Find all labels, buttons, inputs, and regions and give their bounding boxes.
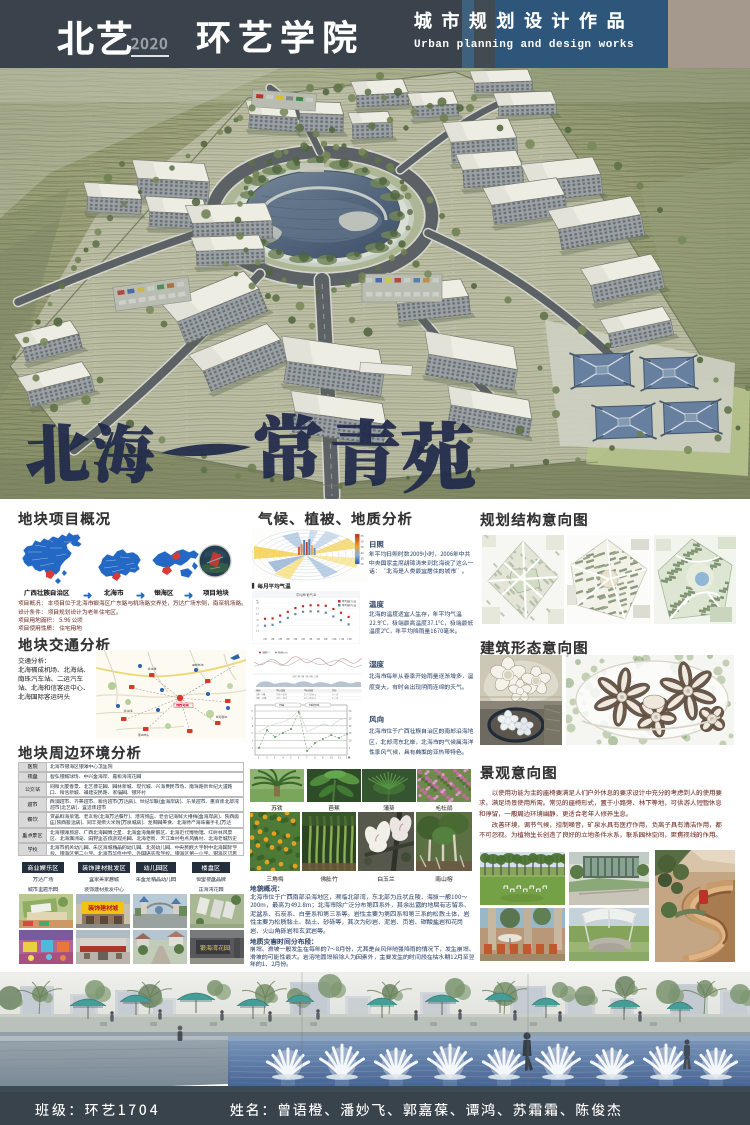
- svg-text:1: 1: [252, 746, 254, 750]
- svg-text:25: 25: [349, 716, 352, 720]
- svg-text:苑: 苑: [399, 399, 477, 499]
- svg-text:6～14: 6～14: [332, 696, 338, 700]
- svg-text:月: 月: [347, 756, 351, 760]
- svg-text:装饰建材城: 装饰建材城: [87, 903, 118, 912]
- svg-text:20～260mm: 20～260mm: [304, 696, 316, 700]
- svg-text:北海站: 北海站: [123, 709, 133, 713]
- svg-text:风向频率: 风向频率: [308, 703, 320, 707]
- svg-text:7月: 7月: [309, 637, 313, 641]
- svg-text:2: 2: [252, 739, 254, 743]
- svg-text:5: 5: [290, 756, 292, 760]
- svg-text:客运码头: 客运码头: [137, 733, 149, 737]
- svg-text:10: 10: [330, 756, 333, 760]
- svg-text:2: 2: [266, 756, 268, 760]
- svg-text:4: 4: [251, 724, 253, 728]
- svg-text:银海湾花园: 银海湾花园: [200, 943, 230, 952]
- svg-text:15: 15: [349, 731, 352, 735]
- svg-text:15: 15: [255, 629, 259, 633]
- svg-text:平均高/低气温: 平均高/低气温: [295, 592, 317, 597]
- svg-text:湿度%: 湿度%: [262, 651, 270, 655]
- svg-text:20: 20: [349, 724, 352, 728]
- svg-text:4月: 4月: [285, 637, 290, 641]
- svg-text:风速: 风速: [278, 703, 285, 707]
- svg-text:10: 10: [360, 562, 364, 566]
- svg-text:10: 10: [349, 739, 352, 743]
- svg-text:福成机场: 福成机场: [192, 663, 203, 667]
- svg-text:9: 9: [322, 756, 324, 760]
- svg-text:6: 6: [252, 709, 254, 713]
- svg-text:8月: 8月: [316, 637, 320, 641]
- svg-text:10月: 10月: [331, 637, 336, 641]
- svg-text:海: 海: [92, 405, 156, 495]
- svg-text:11: 11: [338, 756, 341, 760]
- svg-text:5月: 5月: [293, 637, 297, 641]
- svg-text:7月—12月: 7月—12月: [256, 696, 266, 700]
- svg-text:1月: 1月: [263, 637, 267, 641]
- svg-text:1月 3月 5月 7月 9月 11月: 1月 3月 5月 7月 9月 11月: [292, 675, 318, 679]
- svg-text:3月: 3月: [278, 637, 282, 641]
- svg-text:40: 40: [255, 601, 259, 605]
- svg-text:降雨mm: 降雨mm: [278, 651, 289, 655]
- svg-text:3: 3: [274, 756, 276, 760]
- svg-text:青: 青: [330, 398, 402, 499]
- svg-text:5: 5: [252, 716, 254, 720]
- svg-text:2月: 2月: [271, 637, 275, 641]
- svg-text:和信客运: 和信客运: [215, 715, 227, 719]
- svg-text:5: 5: [349, 746, 351, 750]
- svg-text:北: 北: [23, 403, 90, 497]
- svg-text:70%～82%: 70%～82%: [276, 696, 287, 700]
- svg-text:项目地块: 项目地块: [175, 703, 190, 708]
- svg-text:北海港: 北海港: [147, 667, 157, 671]
- svg-text:9月: 9月: [324, 637, 328, 641]
- svg-text:8: 8: [314, 756, 316, 760]
- svg-text:平均低气温: 平均低气温: [341, 604, 356, 608]
- svg-text:1: 1: [258, 756, 260, 760]
- svg-text:15: 15: [360, 556, 364, 560]
- svg-text:6月: 6月: [301, 637, 305, 641]
- svg-text:常: 常: [253, 393, 325, 495]
- svg-text:6: 6: [298, 756, 300, 760]
- svg-text:3: 3: [252, 731, 254, 735]
- svg-text:11月: 11月: [339, 637, 344, 641]
- svg-text:7: 7: [306, 756, 308, 760]
- svg-text:30: 30: [349, 709, 352, 713]
- svg-text:12月: 12月: [347, 637, 352, 641]
- svg-text:4: 4: [281, 756, 283, 760]
